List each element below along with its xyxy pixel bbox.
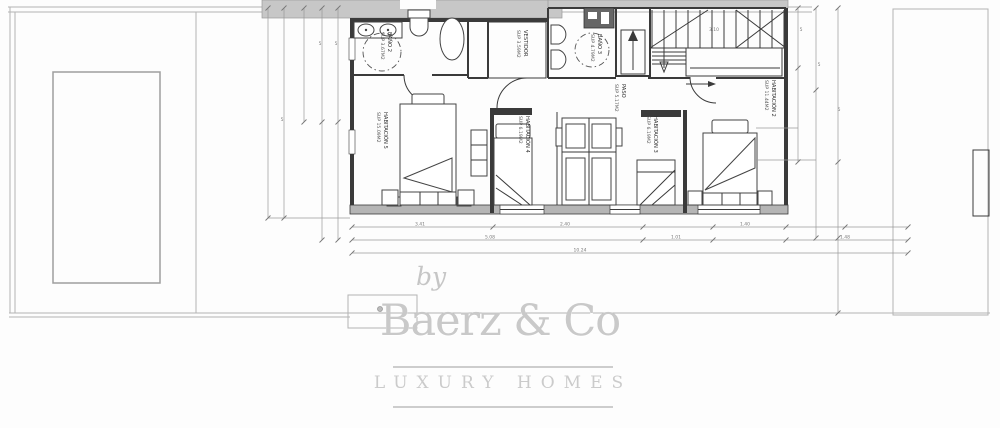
dim-label-stair: 3.10	[709, 27, 719, 33]
roof-drain-dot	[378, 307, 383, 312]
right-terrace	[893, 9, 988, 315]
room-label-habitacion3: HABITACIÓN 3	[652, 116, 659, 153]
bidet-bano3	[551, 50, 566, 69]
pool	[53, 72, 160, 283]
floor-plan-canvas: 3.41 2.40 1.40 5.08 1.01 1.48 10.24 3.10…	[0, 0, 1000, 428]
left-window-1	[349, 38, 355, 60]
room-label-bano3: BAÑO 3	[596, 34, 603, 54]
bottom-windows	[500, 205, 760, 214]
nightstand	[758, 191, 772, 205]
desk-unit	[556, 118, 622, 205]
elevator	[616, 8, 650, 76]
left-window-2	[349, 130, 355, 154]
lower-roof-box	[348, 295, 417, 328]
dim-label: 1.48	[840, 235, 850, 241]
dim-tick-label: 5	[838, 107, 841, 113]
right-wall	[784, 8, 788, 214]
wall-hab3-hab2	[683, 110, 687, 213]
right-terrace-planter	[973, 150, 989, 216]
room-label-bano2: BAÑO 2	[386, 32, 393, 52]
door-arc-hab2	[690, 77, 716, 103]
nightstand	[458, 190, 474, 205]
dim-label: 1.01	[671, 235, 681, 241]
dim-label-total: 10.24	[574, 248, 587, 254]
bathtub	[440, 18, 464, 60]
room-area-bano2: SUP 3.67M2	[379, 32, 385, 60]
dim-tick-label: 5	[319, 41, 322, 47]
room-label-habitacion5: HABITACIÓN 5	[382, 112, 389, 149]
dim-label: 2.40	[560, 222, 570, 228]
room-label-vestidor: VESTIDOR	[522, 30, 528, 57]
room-area-habitacion2: SUP 11.44M2	[763, 80, 769, 111]
room-label-habitacion2: HABITACIÓN 2	[770, 80, 777, 117]
room-area-paso: SUP 5.17M2	[613, 84, 619, 112]
bed-hab3	[637, 160, 675, 205]
dim-tick-label: 5	[800, 27, 803, 33]
understair-closet	[686, 48, 782, 76]
room-area-habitacion5: SUP 15.09M2	[375, 112, 381, 143]
dim-label: 1.40	[740, 222, 750, 228]
door-arc-corridor	[497, 78, 527, 108]
bedroom-3-bed	[637, 160, 675, 205]
bathroom-2-fixtures	[354, 10, 464, 103]
dim-label: 3.41	[415, 222, 425, 228]
dim-label: 5.08	[485, 235, 495, 241]
bedroom-5-bed	[382, 94, 474, 205]
floor-plan-drawing: 3.41 2.40 1.40 5.08 1.01 1.48 10.24 3.10…	[0, 0, 1000, 428]
toilet-bano3	[551, 25, 566, 44]
room-area-bano3: SUP 4.79M2	[589, 34, 595, 62]
wardrobe	[471, 130, 487, 176]
dim-tick-label: 5	[281, 117, 284, 123]
staircase	[497, 10, 786, 108]
room-label-habitacion4: HABITACIÓN 4	[524, 116, 531, 154]
nightstand	[382, 190, 398, 205]
bedroom-2-bed	[688, 120, 772, 205]
dim-tick-label: 5	[818, 62, 821, 68]
room-label-paso: PASO	[620, 84, 626, 98]
room-area-habitacion4: SUP 6.19M2	[517, 116, 523, 144]
wall-hab5-hab4	[490, 108, 494, 213]
nightstand	[688, 191, 702, 205]
room-area-vestidor: SUP 3.59M2	[515, 30, 521, 58]
room-area-habitacion3: SUP 6.19M2	[645, 116, 651, 144]
toilet	[408, 10, 430, 36]
dim-tick-label: 5	[335, 41, 338, 47]
